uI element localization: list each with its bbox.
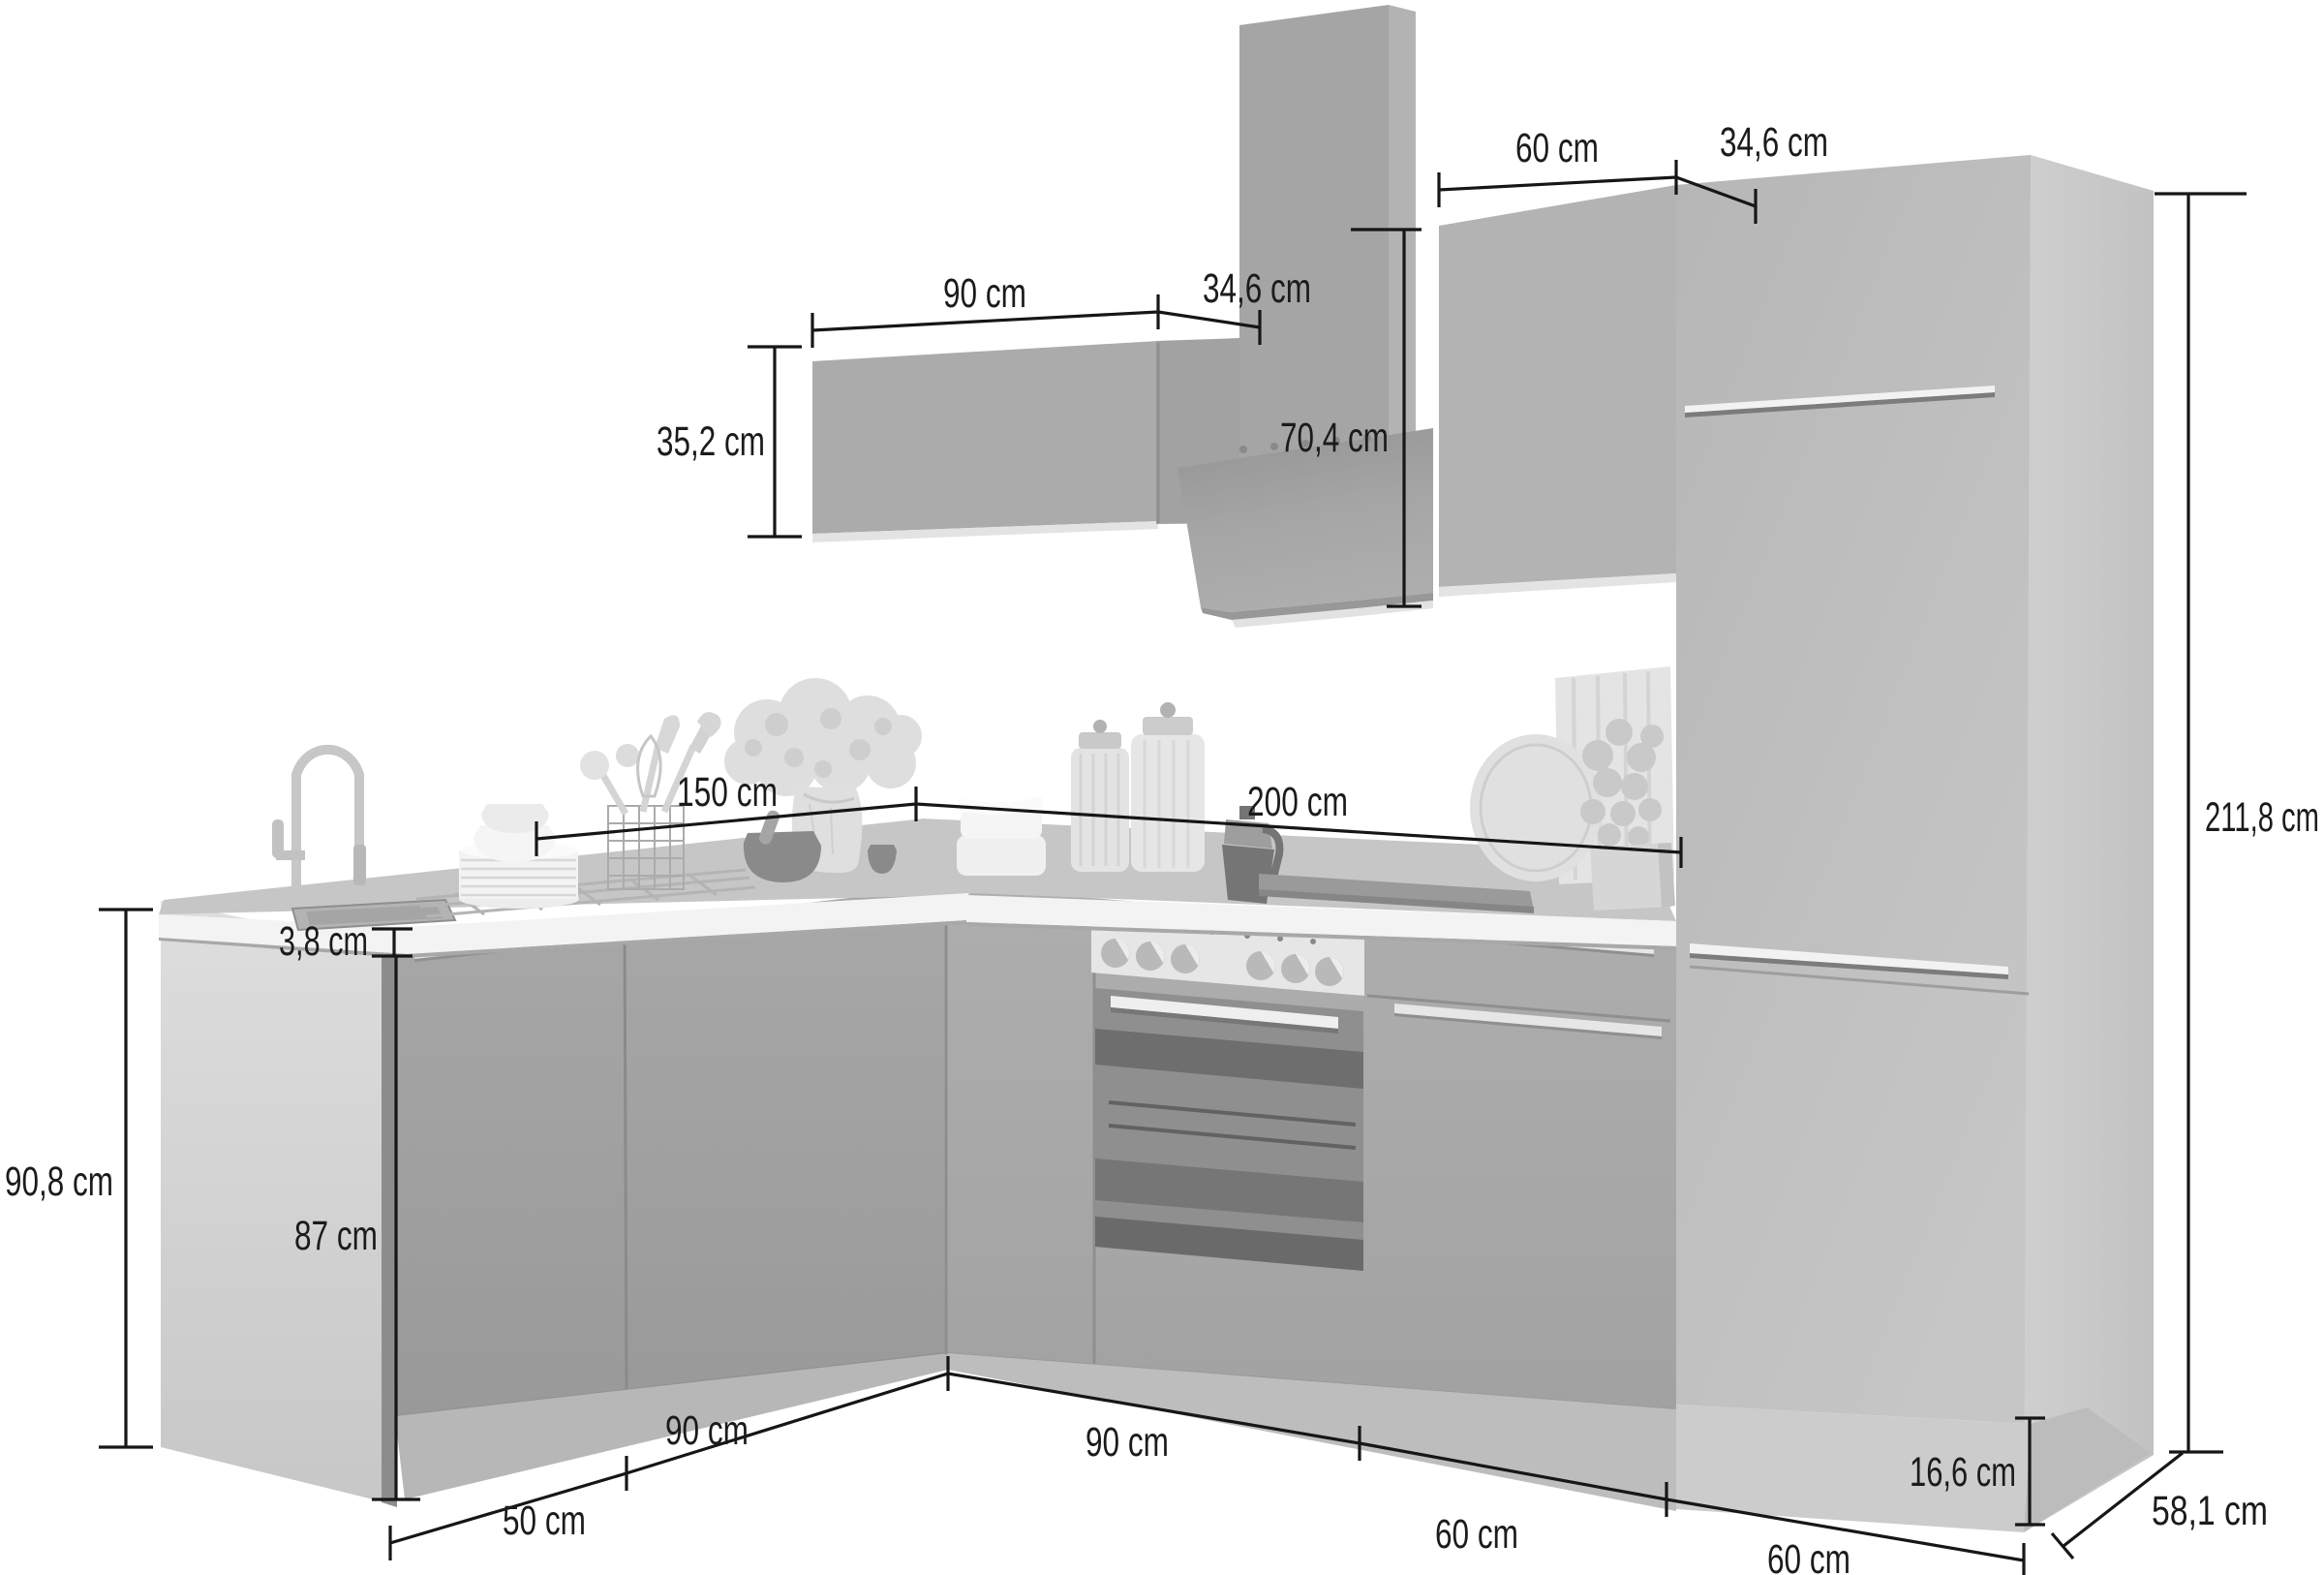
svg-text:87 cm: 87 cm (294, 1213, 378, 1259)
svg-text:70,4 cm: 70,4 cm (1280, 415, 1389, 461)
svg-text:200 cm: 200 cm (1247, 779, 1348, 825)
svg-text:50 cm: 50 cm (503, 1498, 586, 1544)
svg-text:90 cm: 90 cm (1086, 1419, 1169, 1466)
svg-text:60 cm: 60 cm (1767, 1536, 1850, 1575)
svg-text:90 cm: 90 cm (665, 1407, 749, 1454)
svg-text:90 cm: 90 cm (943, 270, 1026, 317)
svg-text:60 cm: 60 cm (1435, 1511, 1518, 1558)
svg-text:35,2 cm: 35,2 cm (657, 418, 765, 465)
svg-text:16,6 cm: 16,6 cm (1910, 1449, 2016, 1496)
svg-text:90,8 cm: 90,8 cm (5, 1158, 113, 1205)
svg-text:58,1 cm: 58,1 cm (2152, 1488, 2268, 1534)
svg-text:150 cm: 150 cm (677, 769, 778, 816)
svg-text:34,6 cm: 34,6 cm (1720, 119, 1828, 166)
svg-text:34,6 cm: 34,6 cm (1203, 265, 1311, 312)
svg-text:3,8 cm: 3,8 cm (279, 918, 368, 965)
svg-text:60 cm: 60 cm (1515, 125, 1599, 171)
svg-text:211,8 cm: 211,8 cm (2205, 794, 2319, 841)
